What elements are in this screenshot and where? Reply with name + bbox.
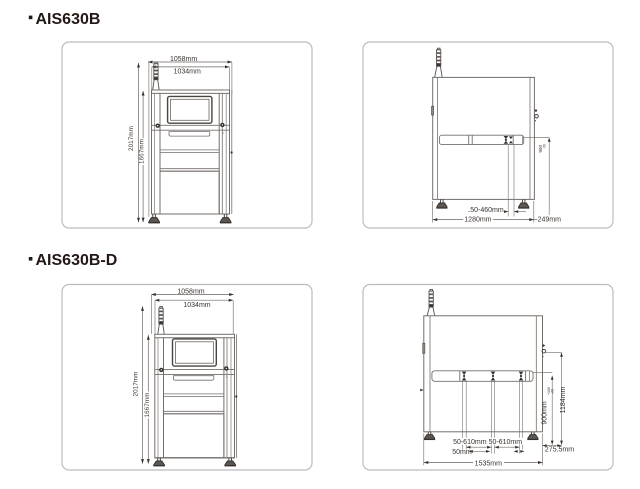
svg-text:-30: -30 xyxy=(542,144,546,149)
svg-text:1667mm: 1667mm xyxy=(144,393,151,418)
svg-text:50-610mm: 50-610mm xyxy=(453,439,487,446)
svg-text:275.5mm: 275.5mm xyxy=(545,447,574,454)
svg-text:-20: -20 xyxy=(551,389,555,394)
svg-text:249mm: 249mm xyxy=(538,216,562,223)
svg-text:2017mm: 2017mm xyxy=(128,126,135,151)
svg-text:1058mm: 1058mm xyxy=(177,289,204,296)
svg-text:1280mm: 1280mm xyxy=(464,216,491,223)
svg-text:1667mm: 1667mm xyxy=(139,139,146,164)
svg-text:50-610mm: 50-610mm xyxy=(489,439,523,446)
svg-text:1058mm: 1058mm xyxy=(170,56,197,63)
svg-text:2017mm: 2017mm xyxy=(132,372,139,397)
svg-text:1034mm: 1034mm xyxy=(183,302,210,309)
svg-text:900mm: 900mm xyxy=(542,401,549,425)
svg-text:AIS630B: AIS630B xyxy=(36,11,101,28)
svg-text:50-460mm: 50-460mm xyxy=(470,207,504,214)
svg-text:50mm: 50mm xyxy=(452,449,472,456)
svg-text:1535mm: 1535mm xyxy=(475,461,502,468)
svg-text:AIS630B-D: AIS630B-D xyxy=(36,252,118,269)
svg-text:1184mm: 1184mm xyxy=(560,386,567,413)
svg-text:1034mm: 1034mm xyxy=(174,69,201,76)
